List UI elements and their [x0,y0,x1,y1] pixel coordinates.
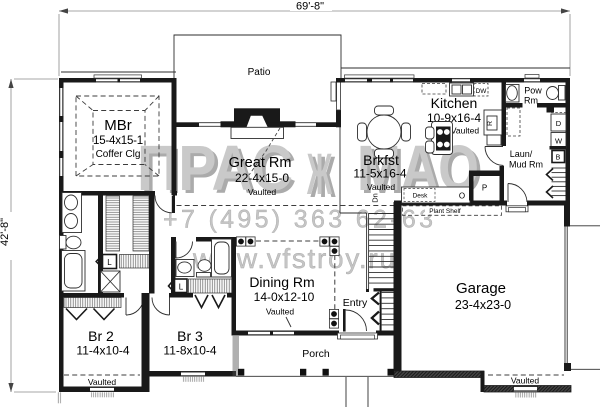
svg-text:Vaulted: Vaulted [451,126,479,136]
svg-text:Br 3: Br 3 [177,328,203,344]
svg-text:L: L [179,283,184,292]
svg-text:Kitchen: Kitchen [431,95,478,111]
svg-text:B: B [556,155,561,162]
svg-text:MBr: MBr [104,117,132,134]
svg-text:Dn: Dn [371,193,380,203]
svg-text:14-0x12-10: 14-0x12-10 [254,290,315,304]
svg-text:Pow: Pow [524,86,542,96]
svg-text:Patio: Patio [248,67,271,78]
svg-text:Br 2: Br 2 [88,328,114,344]
svg-text:Laun/: Laun/ [510,149,533,159]
svg-text:23-4x23-0: 23-4x23-0 [455,298,511,312]
svg-text:Vaulted: Vaulted [367,182,395,192]
svg-text:Coffer Clg: Coffer Clg [96,149,141,160]
svg-text:42'-8": 42'-8" [0,218,11,246]
svg-text:Plant Shelf: Plant Shelf [429,208,461,215]
svg-text:Entry: Entry [343,297,368,309]
svg-text:Dining Rm: Dining Rm [249,274,314,290]
svg-text:O: O [459,192,465,201]
svg-text:D: D [556,119,562,128]
svg-text:P: P [482,184,487,193]
svg-text:11-5x16-4: 11-5x16-4 [353,167,406,181]
svg-text:69'-8": 69'-8" [296,1,324,13]
svg-text:Vaulted: Vaulted [511,376,539,386]
svg-text:Vaulted: Vaulted [88,377,116,387]
svg-text:W: W [555,137,563,146]
svg-text:Ж: Ж [307,142,333,207]
svg-text:15-4x15-1: 15-4x15-1 [93,135,143,147]
svg-text:11-8x10-4: 11-8x10-4 [163,344,216,358]
svg-text:Mud Rm: Mud Rm [509,160,543,170]
svg-text:DW: DW [476,88,488,95]
svg-text:Great Rm: Great Rm [229,155,292,171]
svg-text:11-4x10-4: 11-4x10-4 [76,344,129,358]
svg-text:Porch: Porch [302,348,330,360]
svg-text:Desk: Desk [413,193,429,200]
svg-text:Rm: Rm [524,96,538,106]
svg-text:L: L [107,258,112,267]
svg-text:Vaulted: Vaulted [266,307,294,317]
svg-text:R: R [487,121,494,126]
svg-text:22-4x15-0: 22-4x15-0 [235,171,289,185]
svg-text:Vaulted: Vaulted [248,187,276,197]
svg-text:Garage: Garage [456,280,506,297]
